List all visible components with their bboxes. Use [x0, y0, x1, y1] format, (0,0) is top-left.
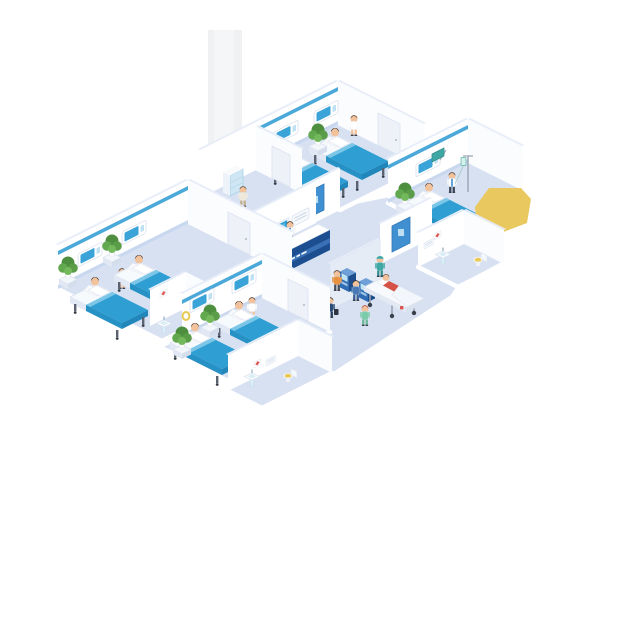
door-handle	[395, 139, 397, 141]
door-handle	[303, 304, 305, 306]
hospital-floor-illustration: Isometric hospital floor illustration Cu…	[0, 0, 640, 640]
door-handle	[245, 238, 247, 240]
briefcase	[334, 309, 339, 315]
stretcher-cross-label	[400, 306, 403, 309]
stretcher-wheel	[412, 311, 416, 315]
illustration-stage: Isometric hospital floor illustration Cu…	[0, 0, 640, 640]
cabinet-side	[223, 172, 230, 196]
door-window	[398, 229, 404, 236]
stretcher-wheel	[390, 314, 394, 318]
stretcher-wheel	[368, 303, 372, 307]
